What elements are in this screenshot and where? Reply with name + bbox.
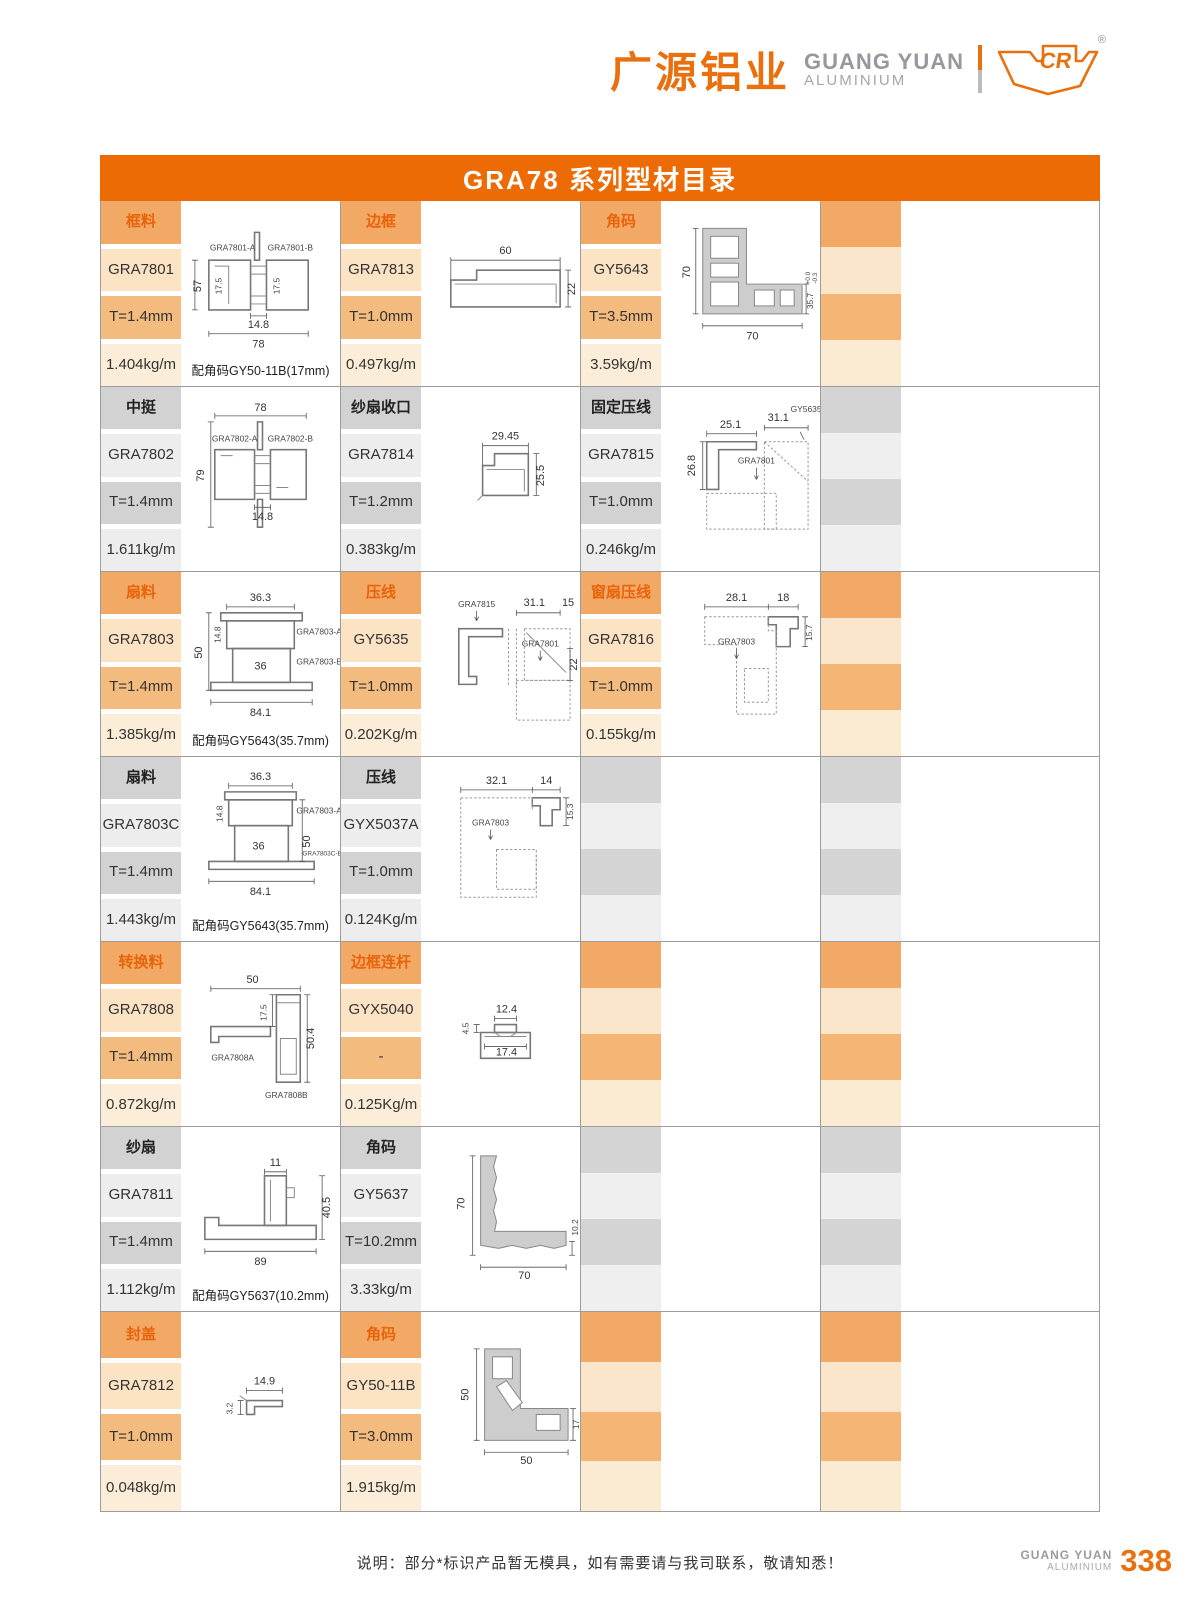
- product-labels: 扇料 GRA7803C T=1.4mm 1.443kg/m: [101, 757, 181, 941]
- product-labels: 边框 GRA7813 T=1.0mm 0.497kg/m: [341, 201, 421, 386]
- dim-label: 50: [520, 1455, 532, 1467]
- category-label: 扇料: [101, 572, 181, 614]
- weight-value: 1.385kg/m: [101, 714, 181, 756]
- product-code: GRA7814: [341, 434, 421, 476]
- profile-drawing: 50 17.5 50.4 GRA7808A GRA7808B: [181, 942, 340, 1126]
- product-cell: 转换料 GRA7808 T=1.4mm 0.872kg/m: [101, 942, 341, 1126]
- brand-name-en: GUANG YUAN ALUMINIUM: [804, 50, 964, 89]
- category-label: 扇料: [101, 757, 181, 799]
- product-cell: 封盖 GRA7812 T=1.0mm 0.048kg/m 14.9 3.2: [101, 1312, 341, 1511]
- category-label: 中挺: [101, 387, 181, 429]
- product-cell: 压线 GY5635 T=1.0mm 0.202Kg/m: [341, 572, 581, 756]
- dim-label: 14.8: [215, 805, 225, 822]
- dim-label: 17.5: [258, 1004, 268, 1021]
- dim-label: 15.7: [804, 624, 814, 641]
- empty-cell: [821, 1127, 1099, 1311]
- footer-brand-line1: GUANG YUAN: [1020, 1549, 1112, 1562]
- weight-value: 0.125Kg/m: [341, 1084, 421, 1126]
- dim-label: 17.5: [271, 278, 281, 295]
- thickness-value: T=1.0mm: [341, 296, 421, 339]
- product-labels: 纱扇收口 GRA7814 T=1.2mm 0.383kg/m: [341, 387, 421, 571]
- product-code: GRA7811: [101, 1174, 181, 1216]
- thickness-value: T=1.2mm: [341, 482, 421, 524]
- product-cell: 压线 GYX5037A T=1.0mm 0.124Kg/m: [341, 757, 581, 941]
- dim-label: 31.1: [768, 412, 789, 424]
- dim-label: 29.45: [492, 431, 519, 443]
- product-code: GY5635: [341, 619, 421, 661]
- table-row: 纱扇 GRA7811 T=1.4mm 1.112kg/m: [101, 1126, 1099, 1311]
- product-cell: 边框 GRA7813 T=1.0mm 0.497kg/m 60 22: [341, 201, 581, 386]
- empty-labels: [581, 1127, 661, 1311]
- dim-label: 22: [568, 658, 580, 670]
- part-ref-label: GRA7802-A: [212, 434, 258, 444]
- dim-tolerance: +0.0: [805, 271, 812, 284]
- weight-value: 0.155kg/m: [581, 714, 661, 756]
- product-code: GRA7803C: [101, 804, 181, 846]
- weight-value: 0.124Kg/m: [341, 899, 421, 941]
- dim-label: 14.8: [248, 319, 269, 331]
- catalog-grid: 框料 GRA7801 T=1.4mm 1.404kg/m: [100, 201, 1100, 1512]
- brand-divider: [978, 45, 982, 93]
- weight-value: 1.404kg/m: [101, 344, 181, 387]
- product-cell: 窗扇压线 GRA7816 T=1.0mm 0.155kg/m: [581, 572, 821, 756]
- profile-drawing: 50 17 50: [421, 1312, 580, 1511]
- table-row: 扇料 GRA7803C T=1.4mm 1.443kg/m: [101, 756, 1099, 941]
- product-code: GRA7808: [101, 989, 181, 1031]
- thickness-value: T=1.0mm: [101, 1414, 181, 1460]
- table-row: 转换料 GRA7808 T=1.4mm 0.872kg/m: [101, 941, 1099, 1126]
- dim-label: 32.1: [486, 775, 507, 787]
- product-cell: 角码 GY50-11B T=3.0mm 1.915kg/m: [341, 1312, 581, 1511]
- product-cell: 角码 GY5637 T=10.2mm 3.33kg/m 70 10.2: [341, 1127, 581, 1311]
- product-code: GRA7812: [101, 1363, 181, 1409]
- empty-cell: [581, 757, 821, 941]
- empty-cell: [581, 1312, 821, 1511]
- dim-label: 70: [518, 1270, 530, 1282]
- product-code: GRA7816: [581, 619, 661, 661]
- thickness-value: -: [341, 1037, 421, 1079]
- dim-tolerance: -0.3: [812, 272, 819, 284]
- product-cell: 角码 GY5643 T=3.5mm 3.59kg/m: [581, 201, 821, 386]
- profile-drawing: 78 79 14.8 GRA7802-A GRA7802-B: [181, 387, 340, 571]
- thickness-value: T=3.5mm: [581, 296, 661, 339]
- table-row: 封盖 GRA7812 T=1.0mm 0.048kg/m 14.9 3.2: [101, 1311, 1099, 1511]
- empty-labels: [821, 757, 901, 941]
- dim-label: 25.1: [720, 419, 741, 431]
- profile-drawing: 36.3 14.8 GRA7803-A 50 36 GRA7803C-B 84.…: [181, 757, 340, 941]
- part-ref-label: GY5635: [791, 404, 820, 414]
- dim-label: 17.5: [214, 278, 224, 295]
- empty-labels: [821, 942, 901, 1126]
- part-ref-label: GRA7802-B: [268, 434, 314, 444]
- dim-label: 15: [562, 597, 574, 609]
- empty-labels: [581, 942, 661, 1126]
- product-code: GRA7802: [101, 434, 181, 476]
- profile-drawing: 32.1 14 15.3 GRA7803: [421, 757, 580, 941]
- dim-label: 26.8: [686, 455, 698, 476]
- dim-label: 14.8: [213, 626, 223, 643]
- empty-drawing: [661, 1312, 820, 1511]
- empty-cell: [581, 1127, 821, 1311]
- dim-label: 57: [192, 280, 204, 292]
- product-code: GRA7813: [341, 249, 421, 292]
- dim-label: 17: [571, 1419, 580, 1429]
- product-labels: 扇料 GRA7803 T=1.4mm 1.385kg/m: [101, 572, 181, 756]
- empty-cell: [821, 572, 1099, 756]
- corner-code-note: 配角码GY5637(10.2mm): [181, 1285, 340, 1304]
- product-code: GYX5037A: [341, 804, 421, 846]
- product-code: GY5637: [341, 1174, 421, 1216]
- thickness-value: T=1.4mm: [101, 296, 181, 339]
- dim-label: 84.1: [250, 886, 271, 898]
- dim-label: 70: [746, 331, 758, 343]
- thickness-value: T=1.4mm: [101, 667, 181, 709]
- product-cell: 框料 GRA7801 T=1.4mm 1.404kg/m: [101, 201, 341, 386]
- weight-value: 0.048kg/m: [101, 1465, 181, 1511]
- profile-drawing: 11 40.5 89 配角码GY5637(10.2mm): [181, 1127, 340, 1311]
- weight-value: 1.915kg/m: [341, 1465, 421, 1511]
- product-labels: 转换料 GRA7808 T=1.4mm 0.872kg/m: [101, 942, 181, 1126]
- dim-label: 4.5: [461, 1022, 471, 1034]
- product-labels: 边框连杆 GYX5040 - 0.125Kg/m: [341, 942, 421, 1126]
- dim-label: 14.8: [252, 511, 273, 523]
- profile-drawing: 60 22: [421, 201, 580, 386]
- product-cell: 固定压线 GRA7815 T=1.0mm 0.246kg/m: [581, 387, 821, 571]
- dim-label: 70: [681, 266, 693, 278]
- product-code: GRA7803: [101, 619, 181, 661]
- product-labels: 中挺 GRA7802 T=1.4mm 1.611kg/m: [101, 387, 181, 571]
- footer-brand-block: GUANG YUAN ALUMINIUM 338: [1020, 1543, 1172, 1579]
- corner-code-note: 配角码GY50-11B(17mm): [181, 360, 340, 379]
- empty-drawing: [901, 572, 1099, 756]
- empty-labels: [821, 1127, 901, 1311]
- dim-label: 17.4: [496, 1046, 517, 1058]
- weight-value: 0.383kg/m: [341, 529, 421, 571]
- product-cell: 扇料 GRA7803C T=1.4mm 1.443kg/m: [101, 757, 341, 941]
- footer-brand-text: GUANG YUAN ALUMINIUM: [1020, 1549, 1112, 1573]
- part-ref-label: GRA7808A: [211, 1052, 254, 1062]
- part-ref-label: GRA7801: [738, 456, 775, 466]
- empty-labels: [581, 1312, 661, 1511]
- dim-label: 3.2: [225, 1402, 235, 1414]
- empty-cell: [821, 201, 1099, 386]
- part-ref-label: GRA7803: [472, 818, 509, 828]
- product-labels: 压线 GY5635 T=1.0mm 0.202Kg/m: [341, 572, 421, 756]
- product-code: GY5643: [581, 249, 661, 292]
- thickness-value: T=1.4mm: [101, 852, 181, 894]
- dim-label: 11: [270, 1157, 281, 1169]
- dim-label: 89: [254, 1256, 266, 1268]
- empty-drawing: [901, 1127, 1099, 1311]
- product-labels: 固定压线 GRA7815 T=1.0mm 0.246kg/m: [581, 387, 661, 571]
- empty-cell: [821, 387, 1099, 571]
- product-cell: 扇料 GRA7803 T=1.4mm 1.385kg/m: [101, 572, 341, 756]
- product-labels: 角码 GY5637 T=10.2mm 3.33kg/m: [341, 1127, 421, 1311]
- category-label: 纱扇收口: [341, 387, 421, 429]
- product-code: GY50-11B: [341, 1363, 421, 1409]
- dim-label: 10.2: [570, 1219, 580, 1236]
- empty-labels: [821, 201, 901, 386]
- logo-cr-letters: CR: [1038, 48, 1073, 73]
- empty-cell: [581, 942, 821, 1126]
- empty-drawing: [901, 387, 1099, 571]
- dim-label: 78: [252, 339, 264, 351]
- thickness-value: T=1.0mm: [341, 852, 421, 894]
- category-label: 边框连杆: [341, 942, 421, 984]
- dim-label: 15.3: [565, 803, 575, 820]
- dim-label: 22: [566, 283, 578, 295]
- category-label: 角码: [341, 1127, 421, 1169]
- part-ref-label: GRA7801: [522, 639, 559, 649]
- empty-labels: [821, 572, 901, 756]
- dim-label: 28.1: [726, 592, 747, 604]
- weight-value: 3.59kg/m: [581, 344, 661, 387]
- dim-label: 40.5: [321, 1197, 333, 1218]
- brand-en-line1: GUANG YUAN: [804, 50, 964, 73]
- empty-cell: [821, 757, 1099, 941]
- product-cell: 纱扇 GRA7811 T=1.4mm 1.112kg/m: [101, 1127, 341, 1311]
- dim-label: 50.4: [305, 1028, 317, 1049]
- empty-labels: [821, 387, 901, 571]
- category-label: 转换料: [101, 942, 181, 984]
- weight-value: 1.443kg/m: [101, 899, 181, 941]
- dim-label: 12.4: [496, 1004, 517, 1016]
- part-ref-label: GRA7803-A: [296, 806, 340, 816]
- series-title: GRA78 系列型材目录: [100, 155, 1100, 201]
- table-row: 框料 GRA7801 T=1.4mm 1.404kg/m: [101, 201, 1099, 386]
- profile-drawing: 4.5 12.4 17.4: [421, 942, 580, 1126]
- category-label: 角码: [341, 1312, 421, 1358]
- category-label: 固定压线: [581, 387, 661, 429]
- brand-en-line2: ALUMINIUM: [804, 73, 964, 89]
- catalog-page: 广源铝业 GUANG YUAN ALUMINIUM CR ® GRA78 系列型…: [0, 0, 1200, 1614]
- catalog-table: GRA78 系列型材目录 框料 GRA7801 T=1.4mm 1.404kg/…: [100, 155, 1100, 1512]
- product-cell: 中挺 GRA7802 T=1.4mm 1.611kg/m: [101, 387, 341, 571]
- weight-value: 3.33kg/m: [341, 1269, 421, 1311]
- empty-labels: [581, 757, 661, 941]
- empty-drawing: [661, 942, 820, 1126]
- dim-label: 18: [777, 592, 789, 604]
- dim-label: 50: [246, 974, 258, 986]
- profile-drawing: 14.9 3.2: [181, 1312, 340, 1511]
- empty-drawing: [901, 757, 1099, 941]
- dim-label: 50: [193, 646, 205, 658]
- weight-value: 0.872kg/m: [101, 1084, 181, 1126]
- brand-header: 广源铝业 GUANG YUAN ALUMINIUM CR ®: [610, 38, 1100, 100]
- category-label: 纱扇: [101, 1127, 181, 1169]
- product-cell: 边框连杆 GYX5040 - 0.125Kg/m: [341, 942, 581, 1126]
- part-ref-label: GRA7803-B: [296, 656, 340, 666]
- thickness-value: T=1.0mm: [581, 667, 661, 709]
- dim-label: 60: [499, 245, 511, 257]
- part-ref-label: GRA7803-A: [296, 627, 340, 637]
- dim-label: 35.7: [805, 292, 815, 309]
- dim-label: 36.3: [250, 592, 271, 604]
- product-labels: 窗扇压线 GRA7816 T=1.0mm 0.155kg/m: [581, 572, 661, 756]
- dim-label: 14: [540, 775, 552, 787]
- product-labels: 角码 GY50-11B T=3.0mm 1.915kg/m: [341, 1312, 421, 1511]
- empty-cell: [821, 942, 1099, 1126]
- empty-drawing: [661, 757, 820, 941]
- dim-label: 36: [254, 660, 266, 672]
- dim-label: 78: [254, 402, 266, 414]
- dim-label: 14.9: [254, 1376, 275, 1388]
- table-row: 扇料 GRA7803 T=1.4mm 1.385kg/m: [101, 571, 1099, 756]
- profile-drawing: 36.3 14.8 50 36 84.1 GRA7803-A GRA7803-B…: [181, 572, 340, 756]
- page-number: 338: [1120, 1543, 1172, 1579]
- product-code: GRA7815: [581, 434, 661, 476]
- profile-drawing: 28.1 18 15.7 GRA7803: [661, 572, 820, 756]
- dim-label: 84.1: [250, 707, 271, 719]
- part-ref-label: GRA7803: [718, 637, 755, 647]
- category-label: 边框: [341, 201, 421, 244]
- empty-drawing: [661, 1127, 820, 1311]
- empty-drawing: [901, 201, 1099, 386]
- dim-label: 79: [195, 469, 207, 481]
- profile-drawing: 29.45 25.5: [421, 387, 580, 571]
- weight-value: 0.246kg/m: [581, 529, 661, 571]
- empty-drawing: [901, 942, 1099, 1126]
- product-labels: 框料 GRA7801 T=1.4mm 1.404kg/m: [101, 201, 181, 386]
- brand-name-cn: 广源铝业: [610, 39, 790, 100]
- weight-value: 1.611kg/m: [101, 529, 181, 571]
- company-logo-icon: CR ®: [996, 38, 1100, 100]
- dim-label: 25.5: [535, 465, 547, 486]
- footer-brand-line2: ALUMINIUM: [1047, 1562, 1112, 1573]
- profile-drawing: GRA7815 31.1 15 GRA7801 22: [421, 572, 580, 756]
- product-cell: 纱扇收口 GRA7814 T=1.2mm 0.383kg/m 29.45 25.…: [341, 387, 581, 571]
- registered-mark: ®: [1098, 34, 1106, 46]
- product-labels: 压线 GYX5037A T=1.0mm 0.124Kg/m: [341, 757, 421, 941]
- product-code: GYX5040: [341, 989, 421, 1031]
- category-label: 压线: [341, 572, 421, 614]
- part-ref-label: GRA7815: [458, 599, 495, 609]
- empty-cell: [821, 1312, 1099, 1511]
- product-labels: 封盖 GRA7812 T=1.0mm 0.048kg/m: [101, 1312, 181, 1511]
- profile-drawing: 70 70 35.7 +0.0 -0.3: [661, 201, 820, 386]
- dim-label: 36: [252, 840, 264, 852]
- product-labels: 纱扇 GRA7811 T=1.4mm 1.112kg/m: [101, 1127, 181, 1311]
- category-label: 角码: [581, 201, 661, 244]
- part-ref-label: GRA7808B: [265, 1090, 308, 1100]
- category-label: 封盖: [101, 1312, 181, 1358]
- table-row: 中挺 GRA7802 T=1.4mm 1.611kg/m: [101, 386, 1099, 571]
- weight-value: 0.497kg/m: [341, 344, 421, 387]
- weight-value: 1.112kg/m: [101, 1269, 181, 1311]
- dim-label: 50: [301, 835, 313, 847]
- dim-label: 50: [460, 1389, 472, 1401]
- product-labels: 角码 GY5643 T=3.5mm 3.59kg/m: [581, 201, 661, 386]
- thickness-value: T=1.4mm: [101, 1222, 181, 1264]
- dim-label: 31.1: [524, 597, 545, 609]
- part-ref-label: GRA7801-A: [210, 242, 256, 252]
- dim-label: 70: [456, 1198, 468, 1210]
- dim-label: 36.3: [250, 771, 271, 783]
- category-label: 框料: [101, 201, 181, 244]
- part-ref-label: GRA7803C-B: [302, 850, 340, 857]
- thickness-value: T=1.4mm: [101, 482, 181, 524]
- category-label: 窗扇压线: [581, 572, 661, 614]
- weight-value: 0.202Kg/m: [341, 714, 421, 756]
- profile-drawing: 70 10.2 70: [421, 1127, 580, 1311]
- empty-labels: [821, 1312, 901, 1511]
- profile-drawing: GRA7801-A GRA7801-B 57 17.5 17.5 14.8 78…: [181, 201, 340, 386]
- thickness-value: T=10.2mm: [341, 1222, 421, 1264]
- corner-code-note: 配角码GY5643(35.7mm): [181, 915, 340, 934]
- thickness-value: T=1.0mm: [341, 667, 421, 709]
- thickness-value: T=3.0mm: [341, 1414, 421, 1460]
- profile-drawing: 25.1 26.8 31.1 GY5635 GRA7801: [661, 387, 820, 571]
- corner-code-note: 配角码GY5643(35.7mm): [181, 730, 340, 749]
- product-code: GRA7801: [101, 249, 181, 292]
- category-label: 压线: [341, 757, 421, 799]
- empty-drawing: [901, 1312, 1099, 1511]
- thickness-value: T=1.0mm: [581, 482, 661, 524]
- thickness-value: T=1.4mm: [101, 1037, 181, 1079]
- part-ref-label: GRA7801-B: [268, 242, 314, 252]
